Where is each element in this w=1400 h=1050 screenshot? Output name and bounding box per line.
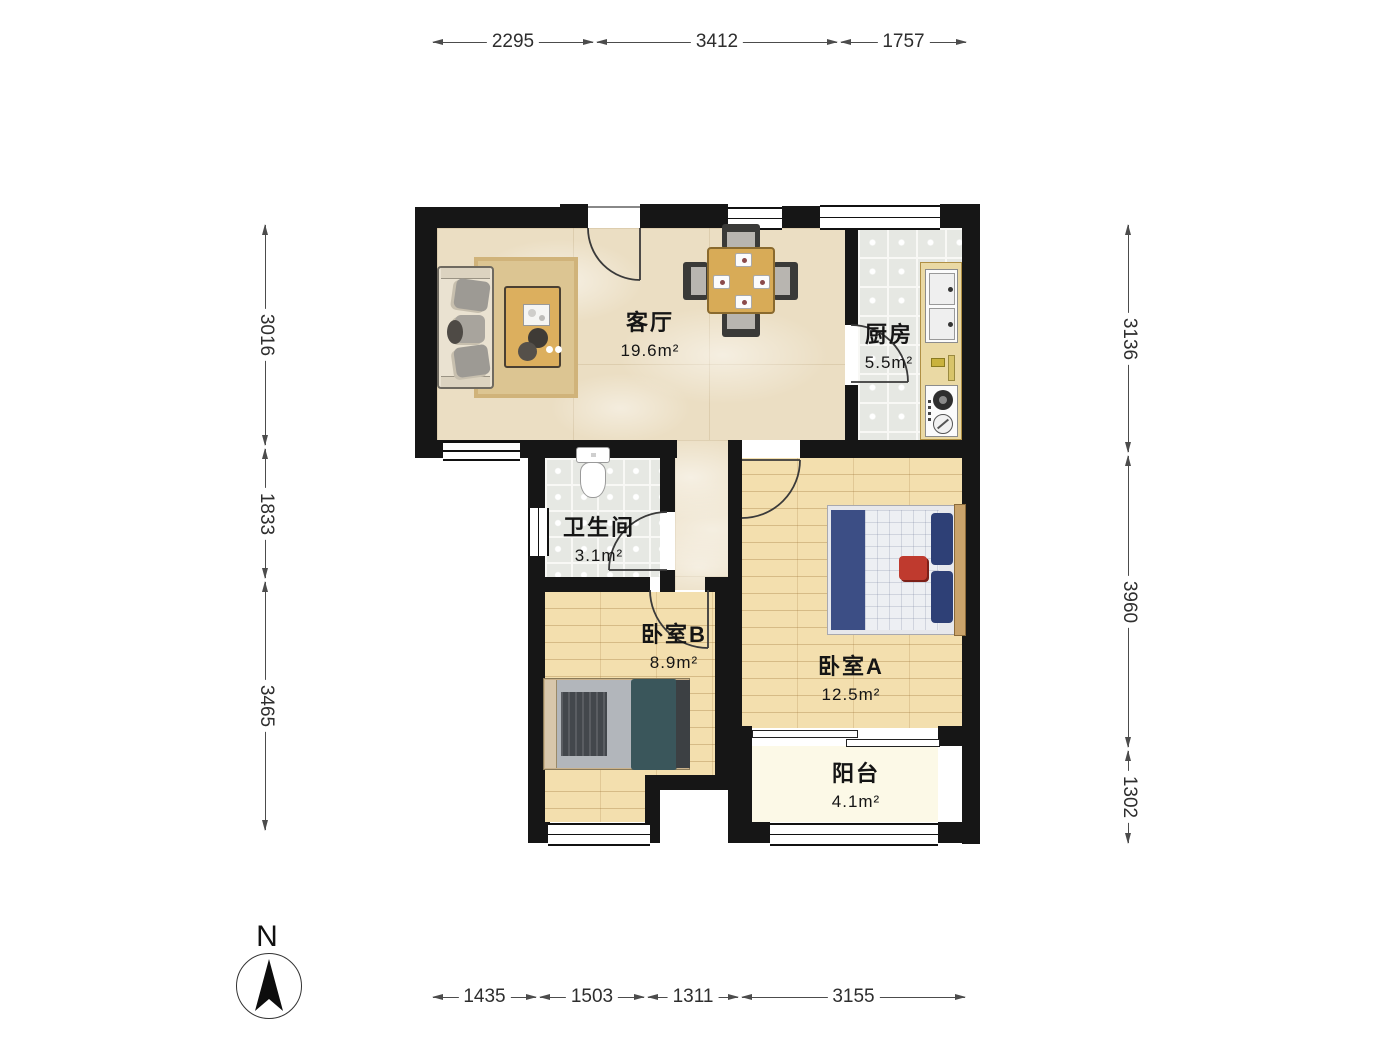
bed-dark-blanket [561,692,607,756]
wall-segment [528,443,545,508]
dim-top-3: 1757 [841,42,966,43]
room-name: 卫生间 [563,510,635,542]
dim-value: 2295 [487,31,539,53]
bedroom-b-floor-lower [545,775,645,822]
coaster-icon [555,346,562,353]
sofa-pillow [447,320,463,344]
dim-left-1: 3016 [265,225,266,445]
wall-segment [728,822,770,843]
dim-value: 1757 [877,31,929,53]
burner-ring [939,396,947,404]
dim-value: 3016 [255,309,277,361]
room-area: 4.1m² [832,792,880,812]
wall-segment [415,207,437,458]
dim-top-1: 2295 [433,42,593,43]
flush-button [591,453,596,457]
plate-icon [713,275,730,289]
wall-segment [938,822,980,843]
plate-dot [760,280,765,285]
dim-value: 3412 [691,31,743,53]
wall-segment [560,204,588,228]
wall-segment [800,440,962,458]
wall-segment [660,443,675,512]
dim-bottom-3: 1311 [648,997,738,998]
sofa-cushion [453,278,491,312]
burner-icon [933,414,953,434]
wall-segment [845,228,858,325]
room-area: 19.6m² [621,341,680,361]
compass-north-label: N [256,920,278,954]
counter-item [948,355,955,381]
wall-segment [640,204,728,228]
room-area: 3.1m² [563,546,635,566]
dim-bottom-4: 3155 [742,997,965,998]
plate-icon [735,253,752,267]
room-name: 阳台 [832,756,880,788]
burner-icon [933,390,953,410]
window-living-left [443,441,520,461]
floorplan-page: { "compass": { "label": "N" }, "rooms": … [0,0,1400,1050]
room-area: 12.5m² [818,685,884,705]
dim-value: 1503 [566,986,618,1008]
window-bathroom [528,508,549,556]
dim-value: 1833 [255,487,277,539]
drain-dot [948,322,953,327]
plate-icon [735,295,752,309]
toilet-tank [576,447,610,463]
dim-value: 3465 [255,680,277,732]
dim-right-1: 3136 [1128,225,1129,452]
dim-value: 3960 [1118,575,1140,627]
bed-single [543,678,690,770]
chair-seat [727,232,755,247]
wall-segment [845,385,858,440]
bed-blanket-navy [831,510,865,630]
room-label-bedroom-a: 卧室A 12.5m² [818,649,884,705]
wall-segment [528,822,550,843]
sliding-door-panel [752,730,858,738]
kitchen-sink [925,269,958,343]
sofa [437,266,494,389]
sofa-armrest [441,376,490,387]
bed-decor-red [899,556,927,580]
dining-chair [722,312,760,337]
room-name: 卧室A [818,649,884,681]
window-kitchen-top [820,205,940,230]
teacup-icon [539,315,545,321]
coffee-table [504,286,561,368]
pillow [931,571,953,623]
dim-left-2: 1833 [265,449,266,578]
dim-left-3: 3465 [265,582,266,830]
plate-icon [753,275,770,289]
sliding-door-panel [846,739,940,747]
sofa-cushion [453,344,491,378]
kettle-icon [518,342,537,361]
plate-dot [742,300,747,305]
stove-knobs [928,400,931,424]
dim-value: 1311 [668,986,719,1008]
sink-basin [929,273,955,305]
dim-value: 3136 [1118,312,1140,364]
dining-chair [683,262,708,300]
room-name: 厨房 [865,317,913,349]
room-label-balcony: 阳台 4.1m² [832,756,880,812]
pillow [931,513,953,565]
toilet-bowl [580,462,606,498]
dim-top-2: 3412 [597,42,837,43]
wall-segment [938,726,962,746]
bed-headboard [545,680,557,768]
dim-value: 1435 [458,986,510,1008]
dim-value: 1302 [1118,771,1140,823]
plate-dot [742,258,747,263]
burner-line [937,419,949,430]
serving-tray [523,304,550,326]
dining-chair [722,224,760,249]
wall-segment [728,746,752,822]
plate-dot [720,280,725,285]
dim-right-3: 1302 [1128,751,1129,843]
gas-stove [925,385,958,437]
wall-segment [528,577,650,592]
window-bedroom-b [548,823,650,846]
wall-segment [715,726,752,746]
dim-bottom-1: 1435 [433,997,536,998]
room-label-bathroom: 卫生间 3.1m² [563,510,635,566]
dining-chair [773,262,798,300]
room-label-kitchen: 厨房 5.5m² [865,317,913,373]
wall-segment [782,206,820,228]
room-label-bedroom-b: 卧室B 8.9m² [641,617,707,673]
dim-value: 3155 [827,986,879,1008]
wall-segment [660,570,675,592]
dim-right-2: 3960 [1128,456,1129,747]
room-name: 卧室B [641,617,707,649]
window-balcony [770,823,938,846]
compass-icon [236,953,302,1019]
drain-dot [948,287,953,292]
dim-bottom-2: 1503 [540,997,644,998]
chair-seat [775,267,790,295]
bed-end-panel [676,680,690,768]
teapot-icon [528,309,536,317]
compass-needle-icon [237,954,301,1018]
chair-seat [727,314,755,329]
room-name: 客厅 [621,305,680,337]
hallway-floor [675,440,728,590]
coaster-icon [546,346,553,353]
room-label-living: 客厅 19.6m² [621,305,680,361]
sofa-armrest [441,268,490,279]
bed-duvet-teal [631,679,677,770]
dining-table [707,247,775,314]
wall-segment [728,443,742,590]
counter-item [931,358,945,367]
bed-headboard [954,504,966,636]
toilet [576,447,610,499]
kitchen-counter [920,262,962,440]
entry-threshold-line [588,206,640,208]
bed-double [827,505,965,635]
chair-seat [691,267,706,295]
sink-basin [929,308,955,340]
room-area: 8.9m² [641,653,707,673]
room-area: 5.5m² [865,353,913,373]
